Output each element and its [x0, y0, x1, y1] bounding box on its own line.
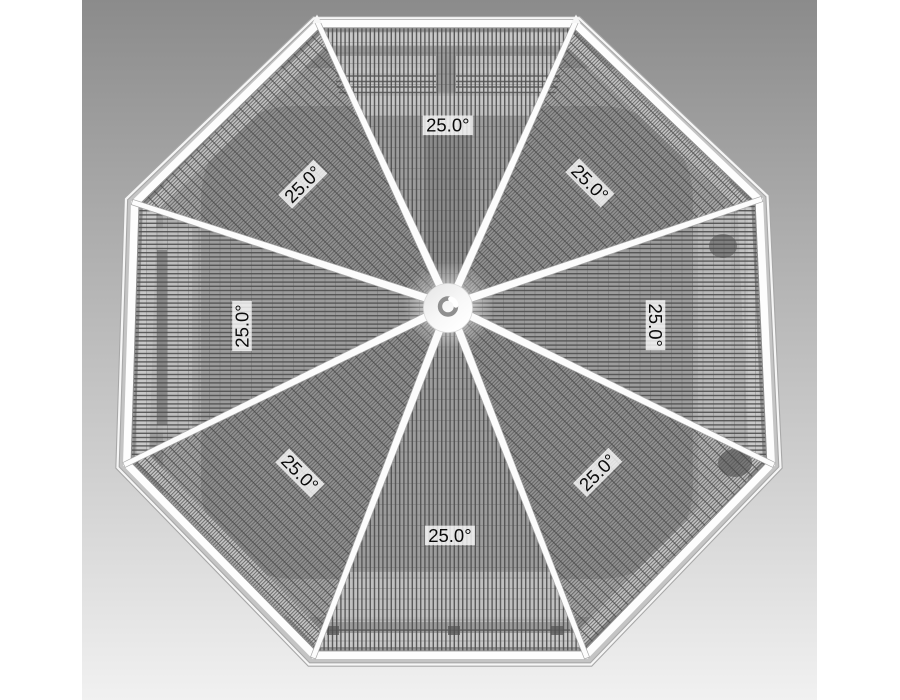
- svg-text:25.0°: 25.0°: [231, 304, 252, 347]
- svg-text:25.0°: 25.0°: [428, 525, 471, 546]
- svg-text:25.0°: 25.0°: [426, 115, 469, 136]
- svg-text:25.0°: 25.0°: [645, 303, 666, 346]
